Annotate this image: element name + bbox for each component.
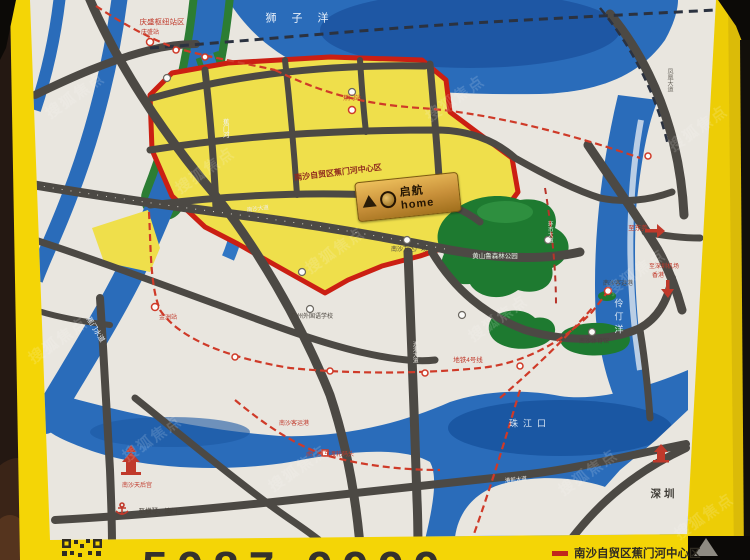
ferry-station-icon	[322, 450, 328, 456]
pagoda-icon	[126, 462, 136, 472]
pagoda-icon	[653, 460, 669, 463]
water-estuary-deep2	[90, 417, 250, 447]
station-icon	[173, 47, 179, 53]
station-icon	[232, 354, 238, 360]
station-icon	[605, 288, 612, 295]
pagoda-icon	[657, 452, 665, 460]
arrow-right-icon	[645, 229, 657, 233]
pagoda-icon	[121, 472, 141, 475]
logo-emblem-icon	[379, 190, 397, 209]
station-icon	[645, 153, 651, 159]
park-huangshanlu-top	[477, 201, 533, 223]
poster-graphic	[0, 0, 750, 560]
poi-icon	[164, 75, 171, 82]
district-caption: 南沙自贸区蕉门河中心区	[552, 545, 701, 560]
phone-number: 5987 9999	[142, 541, 449, 560]
poi-icon	[589, 329, 596, 336]
station-icon	[147, 39, 154, 46]
district-caption-text: 南沙自贸区蕉门河中心区	[574, 545, 701, 560]
poi-icon	[404, 237, 411, 244]
poi-icon	[349, 89, 356, 96]
poi-icon	[459, 312, 466, 319]
arrow-down-icon	[666, 280, 670, 290]
logo-text: 启航home	[399, 178, 455, 211]
station-icon	[349, 107, 356, 114]
map-poster-photo: 启航home 狮 子 洋庆盛枢纽站区庆盛站南沙自贸区蕉门河中心区蕉门河蕉门水道黄…	[0, 0, 750, 560]
poi-icon	[545, 237, 552, 244]
station-icon	[422, 370, 428, 376]
poi-icon	[299, 269, 306, 276]
station-icon	[152, 304, 159, 311]
red-dash-icon	[552, 551, 568, 556]
station-icon	[202, 54, 208, 60]
water-estuary-deep	[448, 400, 672, 456]
poi-icon	[307, 306, 314, 313]
station-icon	[327, 368, 333, 374]
mountain-logo-icon	[362, 194, 377, 207]
station-icon	[517, 363, 523, 369]
